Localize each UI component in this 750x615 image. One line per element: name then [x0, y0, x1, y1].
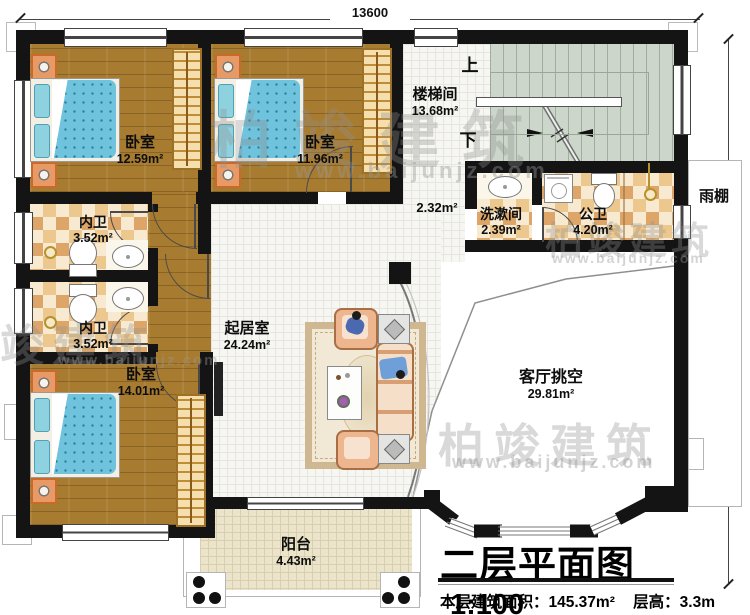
title-underline-thin: [438, 584, 674, 585]
pillar-dot: [193, 576, 205, 588]
label-bedroom-top-mid: 卧室 11.96m²: [285, 134, 355, 167]
washer-panel: [547, 177, 569, 179]
wall-south-right: [362, 497, 434, 509]
nightstand-icon: [215, 54, 241, 80]
tv-icon: [214, 362, 223, 416]
wall-bedroom1-bottom: [30, 192, 152, 204]
window-right-bathroom: [673, 205, 691, 239]
pillow-icon: [34, 124, 50, 158]
window-top-bedroom1: [64, 28, 167, 47]
nightstand-icon: [31, 54, 57, 80]
toilet-tank: [69, 264, 97, 277]
armchair-icon: [336, 430, 380, 470]
floor-plan-canvas: 13600 11400 雨棚: [0, 0, 750, 615]
door-leaf: [207, 254, 209, 298]
bed-sheet: [236, 80, 252, 158]
wardrobe-icon: [172, 48, 202, 170]
pillow-icon: [218, 124, 234, 158]
chair-cushion: [344, 437, 370, 459]
pillar-dot: [209, 592, 221, 604]
wall-hallway-right: [198, 204, 211, 254]
person-head: [352, 311, 361, 320]
pillar-dot: [193, 592, 205, 604]
sink-icon: [112, 287, 144, 310]
pillar-dot: [398, 592, 410, 604]
sink-icon: [112, 245, 144, 268]
window-left-ensuite1: [14, 212, 33, 264]
pillow-icon: [218, 84, 234, 118]
pillow-icon: [34, 440, 50, 474]
bed-sheet: [52, 80, 68, 158]
pillow-icon: [34, 84, 50, 118]
bath-partition: [623, 173, 625, 240]
floor-area-text: 本层建筑面积：145.37m²: [440, 594, 615, 611]
stair-up-label: 上: [458, 56, 482, 76]
void-corner-column: [389, 262, 411, 284]
stair-down-label: 下: [456, 131, 480, 151]
floor-drain-icon: [44, 246, 57, 259]
label-stairwell: 楼梯间 13.68m²: [402, 86, 468, 119]
label-bedroom-top-left: 卧室 12.59m²: [105, 134, 175, 167]
label-ensuite-2: 内卫 3.52m²: [66, 320, 120, 352]
bed-sheet: [52, 394, 68, 474]
label-ensuite-1: 内卫 3.52m²: [66, 214, 120, 246]
wall-washroom-left: [465, 161, 477, 209]
window-top-bedroom2: [244, 28, 363, 47]
wall-bedroom3-top: [16, 352, 156, 364]
coffee-table-icon: [327, 366, 362, 420]
window-left-ensuite2: [14, 288, 33, 334]
wall-bathrooms-top: [465, 161, 688, 173]
label-washroom: 洗漱间 2.39m²: [471, 206, 531, 238]
washer-drum: [551, 183, 567, 199]
lamp-icon: [384, 439, 405, 460]
nightstand-icon: [31, 478, 57, 504]
door-leaf: [194, 204, 196, 248]
wall-ensuite-right: [148, 344, 158, 352]
lamp-icon: [384, 319, 405, 340]
balcony-pillar: [186, 572, 226, 608]
window-bottom-bedroom3: [62, 524, 169, 541]
pillar-dot: [398, 576, 410, 588]
rain-canopy-label: 雨棚: [688, 188, 740, 206]
table-item: [345, 373, 350, 378]
wardrobe-icon: [176, 394, 206, 527]
door-leaf: [110, 211, 148, 213]
person-head: [396, 370, 405, 379]
floor-height-text: 层高：3.3m: [633, 594, 715, 611]
wall-washroom-divider: [532, 173, 542, 205]
label-corridor-area: 2.32m²: [408, 200, 466, 216]
label-family-room: 起居室 24.24m²: [216, 320, 278, 353]
label-public-bathroom: 公卫 4.20m²: [563, 206, 623, 238]
wall-bedroom2-bottom: [211, 192, 318, 204]
shower-head-icon: [644, 188, 657, 201]
side-table-icon: [378, 314, 410, 344]
side-table-icon: [378, 434, 410, 464]
wardrobe-icon: [362, 48, 392, 174]
pillow-icon: [34, 398, 50, 432]
pillar-dot: [382, 592, 394, 604]
wall-ensuite-right: [148, 248, 158, 306]
washing-machine-icon: [544, 174, 573, 203]
nightstand-icon: [31, 162, 57, 188]
window-right-stairwell: [673, 65, 691, 135]
wall-bedroom1-bottom: [196, 192, 211, 204]
nightstand-icon: [215, 162, 241, 188]
shower-hose: [648, 163, 650, 189]
stair-handrail: [476, 97, 622, 107]
label-bedroom-bottom-left: 卧室 14.01m²: [106, 366, 176, 399]
label-balcony: 阳台 4.43m²: [266, 536, 326, 569]
table-item: [336, 375, 341, 380]
window-top-stairwell: [414, 28, 458, 47]
sink-icon: [488, 176, 522, 198]
label-living-void: 客厅挑空 29.81m²: [512, 368, 590, 402]
flower-vase-icon: [337, 395, 350, 408]
title-underline: [438, 578, 674, 582]
floor-drain-icon: [44, 316, 57, 329]
balcony-sliding-door[interactable]: [247, 497, 364, 510]
title-info-line: 本层建筑面积：145.37m² 层高：3.3m: [440, 590, 715, 612]
door-leaf: [542, 207, 544, 242]
